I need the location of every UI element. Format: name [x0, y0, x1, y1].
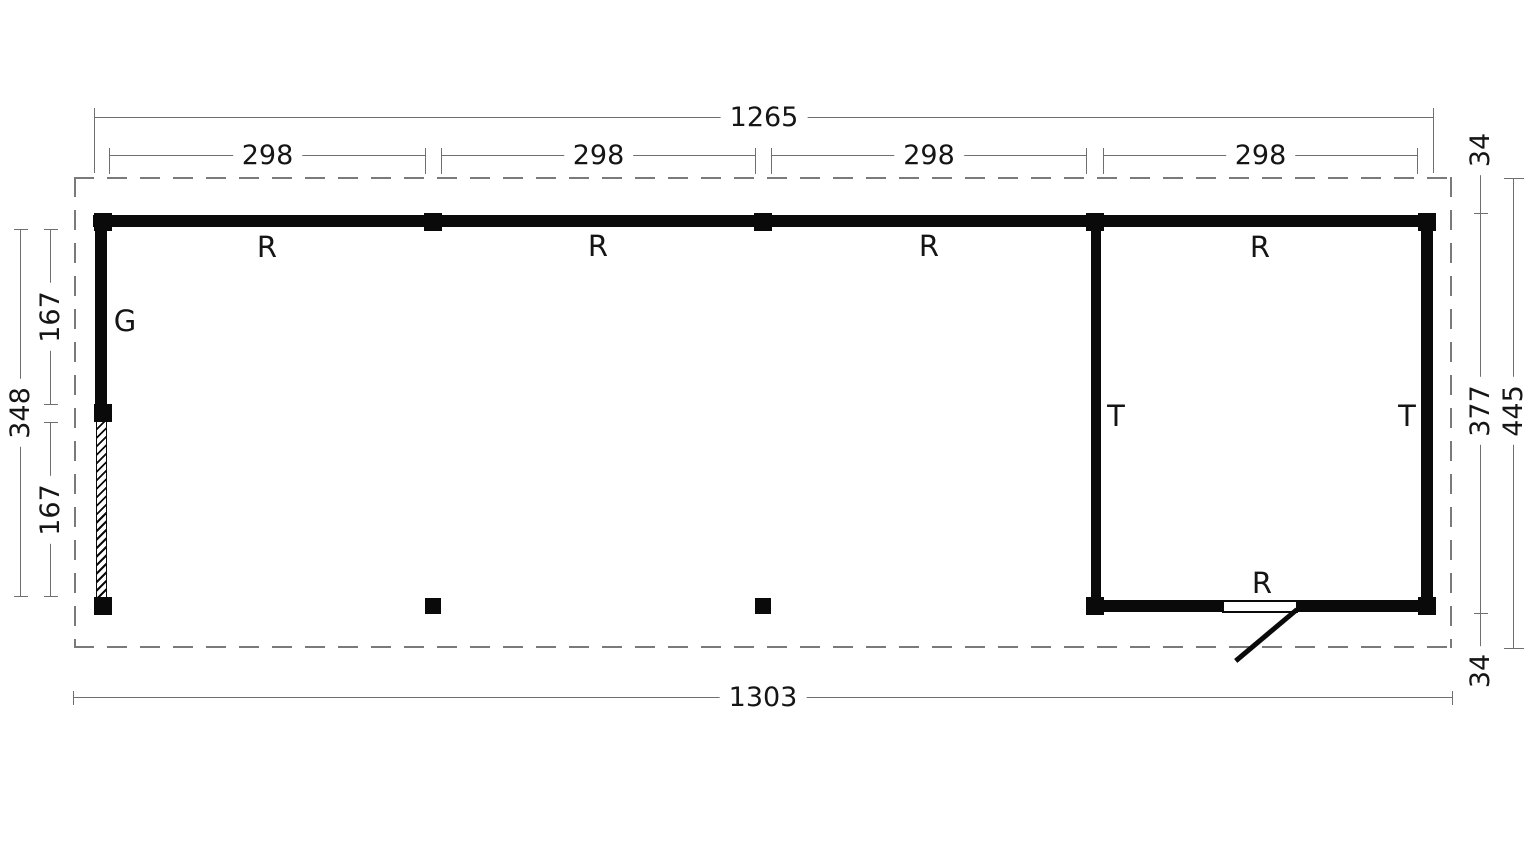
dim-tick: [109, 148, 110, 174]
dim-right-inner-label: 377: [1465, 377, 1497, 445]
dim-top-seg-2: 298: [441, 155, 756, 156]
label-r-2: R: [588, 231, 608, 261]
roof-outline-right: [1450, 177, 1452, 648]
post-front-4: [1086, 213, 1104, 231]
label-door-r: R: [1252, 568, 1272, 598]
label-t-1: T: [1107, 401, 1125, 431]
dim-left-lower: 167: [50, 422, 51, 597]
dim-tick: [1433, 108, 1434, 173]
post-back-4: [1086, 597, 1104, 615]
dim-tick: [14, 596, 28, 597]
dim-tick: [73, 691, 74, 705]
dim-top-seg-1-label: 298: [233, 141, 303, 171]
dim-tick: [1086, 148, 1087, 174]
roof-outline-bottom: [74, 646, 1452, 648]
dim-tick: [44, 422, 58, 423]
floor-plan-canvas: 1265 298 298 298 298 1303 348 167: [0, 0, 1536, 864]
dim-tick: [1474, 613, 1488, 614]
dim-tick: [441, 148, 442, 174]
label-t-2: T: [1398, 401, 1416, 431]
dim-tick: [1474, 213, 1488, 214]
label-g: G: [114, 306, 136, 336]
post-back-3: [755, 598, 771, 614]
dim-tick: [94, 108, 95, 173]
dim-top-seg-1: 298: [109, 155, 426, 156]
label-r-3: R: [919, 231, 939, 261]
dim-tick: [1417, 148, 1418, 174]
post-front-5: [1418, 213, 1436, 231]
dim-left-upper: 167: [50, 229, 51, 405]
dim-tick: [44, 596, 58, 597]
room-back-wall-right: [1298, 600, 1433, 612]
door-leaf: [1222, 600, 1298, 613]
dim-tick: [1452, 691, 1453, 705]
partition-wall: [1091, 227, 1101, 606]
dim-tick: [44, 229, 58, 230]
label-r-1: R: [257, 232, 277, 262]
roof-outline-left: [74, 177, 76, 648]
room-back-wall-left: [1091, 600, 1222, 612]
dim-tick: [1504, 648, 1524, 649]
dim-right-total: 445: [1513, 178, 1514, 649]
dim-top-seg-4: 298: [1103, 155, 1418, 156]
post-front-3: [754, 213, 772, 231]
dim-tick: [44, 404, 58, 405]
post-front-1: [94, 213, 112, 231]
dim-tick: [1504, 178, 1524, 179]
dim-right-top-overhang-label: 34: [1465, 125, 1497, 175]
label-r-4: R: [1250, 232, 1270, 262]
dim-bottom-total-label: 1303: [720, 683, 807, 713]
dim-top-seg-3: 298: [771, 155, 1087, 156]
dim-top-total: 1265: [94, 117, 1434, 118]
dim-top-seg-4-label: 298: [1226, 141, 1296, 171]
dim-left-total: 348: [20, 229, 21, 597]
dim-tick: [771, 148, 772, 174]
dim-left-total-label: 348: [5, 379, 37, 447]
dim-tick: [425, 148, 426, 174]
dim-right-total-label: 445: [1498, 377, 1530, 445]
post-back-1: [94, 597, 112, 615]
post-left-mid: [94, 404, 112, 422]
dim-left-upper-label: 167: [35, 283, 67, 351]
left-wall-hatched: [96, 421, 107, 599]
post-back-2: [425, 598, 441, 614]
post-front-2: [424, 213, 442, 231]
dim-tick: [755, 148, 756, 174]
dim-right-bottom-overhang-label: 34: [1465, 646, 1497, 696]
dim-tick: [14, 229, 28, 230]
door-swing-line: [1234, 608, 1298, 663]
roof-outline-top: [74, 177, 1452, 179]
dim-left-lower-label: 167: [35, 476, 67, 544]
right-wall: [1421, 215, 1433, 606]
dim-right-inner: 34 377 34: [1480, 168, 1481, 649]
dim-top-seg-2-label: 298: [564, 141, 634, 171]
dim-top-seg-3-label: 298: [894, 141, 964, 171]
dim-bottom-total: 1303: [73, 697, 1453, 698]
post-back-5: [1418, 597, 1436, 615]
dim-tick: [1103, 148, 1104, 174]
left-wall-solid: [95, 215, 107, 413]
dim-top-total-label: 1265: [721, 103, 808, 133]
